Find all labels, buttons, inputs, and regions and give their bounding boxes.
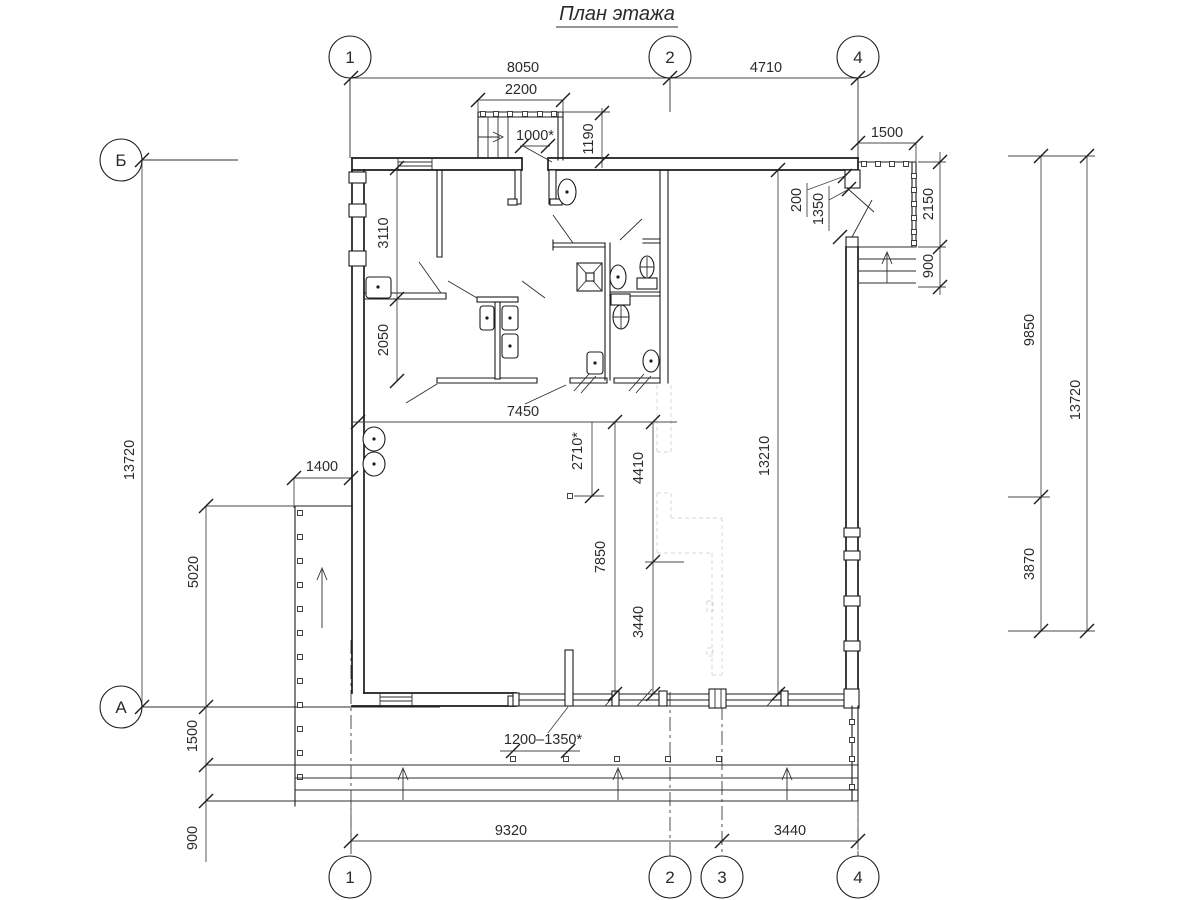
svg-text:1: 1 [345,48,354,67]
dim-hall-3440: 3440 [631,606,647,638]
dim-terrace-1500: 1500 [185,720,201,752]
axis-top-4: 4 [837,36,879,78]
dim-room-2050: 2050 [376,324,392,356]
page-title: План этажа [559,3,675,25]
dim-room-3110: 3110 [376,217,392,248]
dim-right-13720: 13720 [1068,380,1084,420]
floor-plan-page: План этажа [0,0,1200,900]
axis-left-a: А [100,686,142,728]
dim-right-9850: 9850 [1022,314,1038,346]
dim-hall-13210: 13210 [757,436,773,476]
dim-stair-2200: 2200 [505,82,537,98]
dim-door-200: 200 [789,188,805,212]
floor-plan-canvas: План этажа [0,0,1200,900]
bottom-terrace [206,706,858,801]
dim-ramp-5020: 5020 [186,556,202,588]
svg-text:2: 2 [665,48,674,67]
dim-top-8050: 8050 [507,60,539,76]
dim-hall-7850: 7850 [593,541,609,573]
axis-top-1: 1 [329,36,371,78]
svg-text:2: 2 [665,868,674,887]
dim-hall-2710: 2710* [570,432,586,470]
overhead-dashed-outline [657,385,722,675]
right-porch [858,162,917,284]
dim-door-1350: 1350 [811,193,827,225]
shower-icon [577,263,602,291]
dim-ramp-1400: 1400 [306,459,338,475]
dim-entry-1190: 1190 [581,123,597,154]
left-ramp [295,506,352,806]
svg-text:Б: Б [115,151,126,170]
dim-hall-4410: 4410 [631,452,647,484]
drawing-title: План этажа [556,3,678,27]
door-swings [406,146,874,404]
dim-left-13720: 13720 [122,440,138,480]
dim-stair-1000: 1000* [516,128,554,144]
axis-bottom-2: 2 [649,856,691,898]
svg-text:1: 1 [345,868,354,887]
axis-top-2: 2 [649,36,691,78]
axis-bottom-3: 3 [701,856,743,898]
veranda-window-wall [513,650,859,708]
pedestal-sink-icon [610,265,626,289]
dim-porch-900: 900 [921,254,937,278]
axis-left-b: Б [100,139,142,181]
dim-right-3870: 3870 [1022,548,1038,580]
radiator-icons [363,427,385,476]
dim-bottom-3440: 3440 [774,823,806,839]
dim-porch-1500: 1500 [871,125,903,141]
svg-text:4: 4 [853,48,862,67]
toilet-icon [558,179,576,205]
toilet-tank-icon [637,256,657,289]
sink-counter [477,297,518,302]
dim-bottom-9320: 9320 [495,823,527,839]
bidet-icon [643,350,659,372]
dim-top-4710: 4710 [750,60,782,76]
window-mullion [565,650,573,706]
toilet-tank-icon-2 [611,294,630,329]
dim-window-range: 1200–1350* [504,732,583,748]
dim-hall-7450: 7450 [507,404,539,420]
svg-text:3: 3 [717,868,726,887]
washbasin-icon [587,352,603,374]
dimension-lines [135,71,1095,862]
svg-text:А: А [115,698,127,717]
dim-terrace-900: 900 [185,826,201,850]
dim-porch-2150: 2150 [921,188,937,220]
exterior-walls [349,158,860,706]
svg-text:4: 4 [853,868,862,887]
axis-bottom-1: 1 [329,856,371,898]
washbasin-icon-2 [366,277,391,298]
axis-bottom-4: 4 [837,856,879,898]
axis-lines [142,78,858,856]
